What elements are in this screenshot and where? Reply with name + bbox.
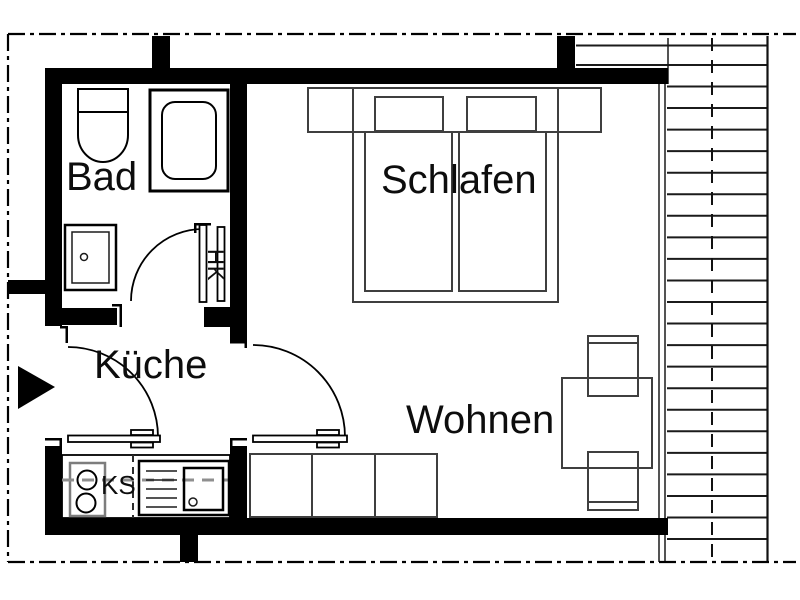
living-door-tab-top	[317, 430, 339, 435]
living-door-arc	[253, 345, 345, 437]
bed-mattress-left	[365, 132, 452, 291]
fridge-label: KS	[101, 472, 136, 498]
stove-burner-bottom	[77, 494, 96, 513]
floorplan-drawing	[0, 0, 800, 600]
floorplan: Bad Schlafen Küche Wohnen KS HK	[0, 0, 800, 600]
kitchen-fixtures	[62, 455, 230, 518]
wall-bottom	[45, 518, 668, 535]
bathroom-door-arc	[131, 229, 203, 301]
wall-bath-left	[45, 68, 62, 326]
wall-stub-top-left	[152, 36, 170, 68]
living-door-leaf	[253, 436, 347, 443]
bed-pillow-left	[375, 97, 443, 131]
wall-divider-upper	[230, 68, 247, 341]
room-label-kitchen: Küche	[94, 345, 207, 385]
entrance-arrow-icon	[18, 366, 55, 409]
kitchen-counter	[62, 455, 230, 518]
living-door-tab-bottom	[317, 443, 339, 448]
toilet-tank	[78, 89, 128, 112]
room-label-living: Wohnen	[406, 400, 554, 440]
wall-top	[45, 68, 668, 84]
wall-bath-bottom	[45, 308, 117, 325]
sideboard	[250, 454, 437, 517]
bed-mattress-right	[459, 132, 546, 291]
kitchen-door-leaf	[68, 436, 160, 443]
washbasin-inner	[72, 232, 109, 283]
kitchen-door-tab-top	[131, 430, 153, 435]
wall-stub-bottom	[180, 535, 198, 562]
room-label-bathroom: Bad	[66, 157, 137, 197]
room-label-bedroom: Schlafen	[381, 160, 537, 200]
shower-basin	[162, 102, 216, 179]
dining-chair-top	[588, 336, 638, 396]
balcony	[576, 36, 768, 562]
bed-pillow-right	[467, 97, 536, 131]
balcony-decking	[576, 46, 767, 540]
sink-drain	[189, 498, 197, 506]
washbasin-drain	[81, 254, 88, 261]
wall-boundary-stub-left	[8, 280, 45, 294]
kitchen-door-tab-bottom	[131, 443, 153, 448]
radiator-label: HK	[204, 249, 226, 282]
wall-stub-top-right	[557, 36, 575, 68]
sink-drainboard-lines	[146, 471, 177, 507]
wall-divider-lower	[230, 446, 247, 518]
